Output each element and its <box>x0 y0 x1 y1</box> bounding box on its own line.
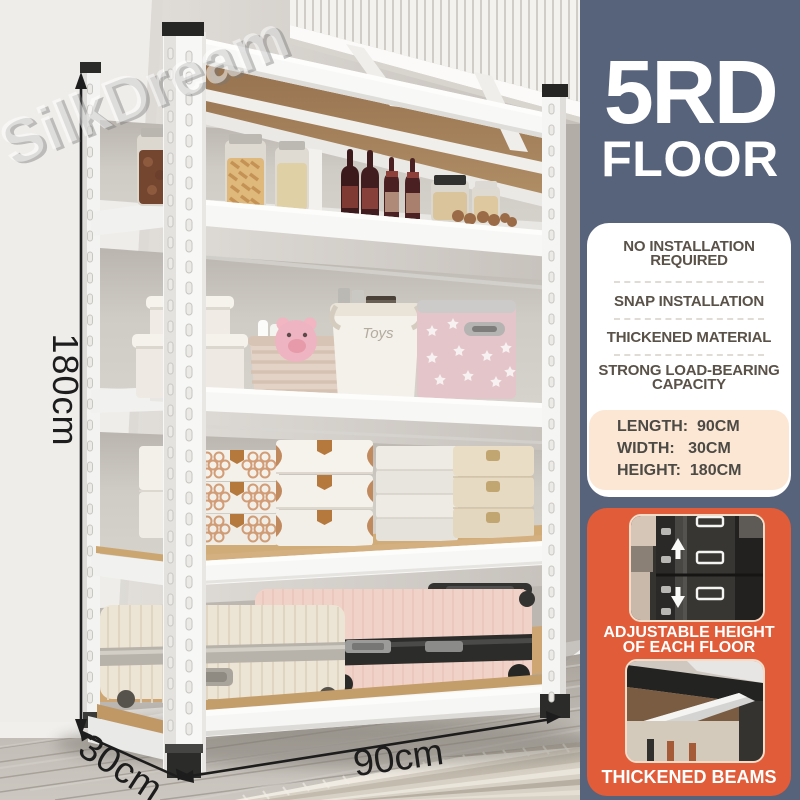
svg-text:Toys: Toys <box>362 325 394 342</box>
svg-text:180cm: 180cm <box>45 333 86 446</box>
